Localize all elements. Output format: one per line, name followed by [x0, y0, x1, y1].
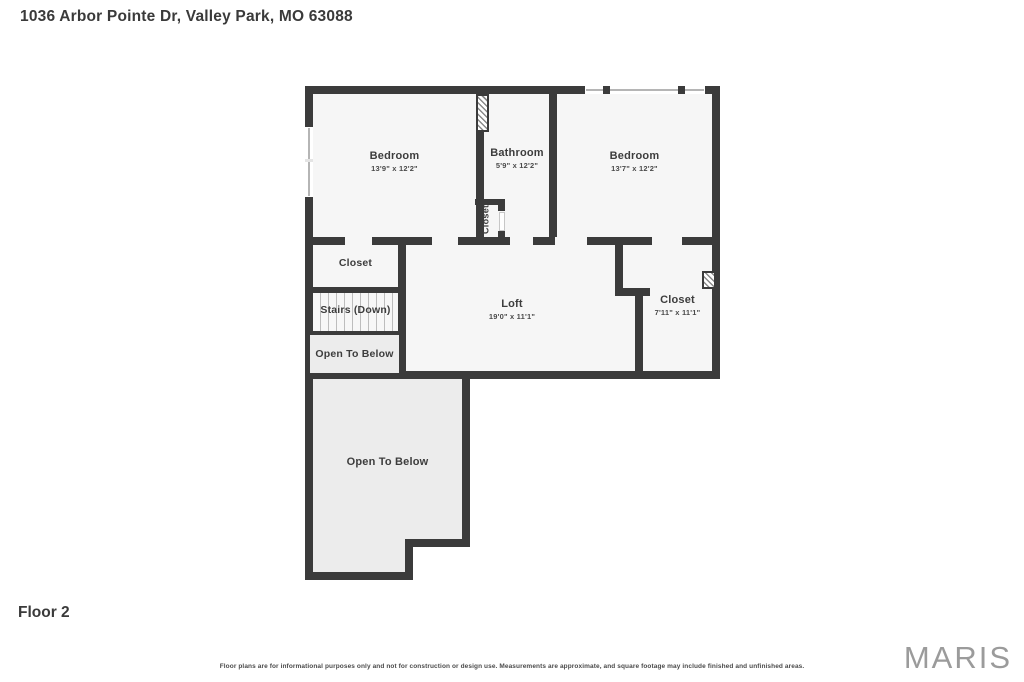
wall [405, 539, 470, 547]
door-opening [345, 237, 372, 245]
room-label-open-to-below-upper: Open To Below [308, 348, 401, 360]
room-label-stairs: Stairs (Down) [309, 304, 402, 316]
window-pane [308, 128, 310, 196]
room-label-open-to-below-lower: Open To Below [313, 456, 462, 469]
room-label-bedroom-left: Bedroom 13'9" x 12'2" [313, 150, 476, 173]
room-label-loft: Loft 19'0" x 11'1" [406, 298, 618, 321]
open-to-below-fill [313, 542, 405, 572]
wall [462, 379, 470, 547]
chimney-hatch [476, 94, 489, 132]
room-label-hall-closet: Closet [313, 257, 398, 269]
window-divider [678, 86, 685, 94]
wall [305, 86, 313, 331]
window-symbol [305, 127, 313, 197]
floor-label: Floor 2 [18, 604, 70, 622]
door-opening [652, 237, 682, 245]
door-leaf [499, 212, 505, 231]
door-opening [510, 237, 533, 245]
floor-plan: Bedroom 13'9" x 12'2" Bathroom 5'9" x 12… [0, 0, 1024, 682]
room-label-bathroom-closet: Closet [478, 199, 493, 239]
wall [498, 231, 505, 239]
wall [498, 199, 505, 211]
vent-hatch [702, 271, 716, 289]
maris-logo: MARIS [904, 640, 1012, 676]
door-opening [555, 237, 587, 245]
disclaimer-text: Floor plans are for informational purpos… [0, 663, 1024, 670]
room-label-bedroom-right: Bedroom 13'7" x 12'2" [557, 150, 712, 173]
wall [712, 86, 720, 379]
room-label-walkin-closet: Closet 7'11" x 11'1" [640, 294, 715, 317]
wall [305, 287, 406, 293]
door-opening [432, 237, 458, 245]
window-divider [305, 159, 313, 162]
window-divider [603, 86, 610, 94]
room-label-bathroom: Bathroom 5'9" x 12'2" [478, 147, 556, 170]
wall [305, 572, 413, 580]
